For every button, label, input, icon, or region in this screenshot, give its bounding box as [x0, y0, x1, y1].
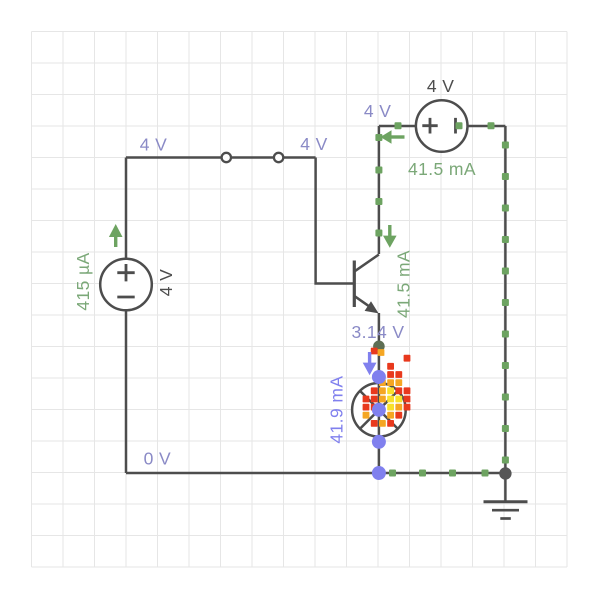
svg-text:4 V: 4 V: [300, 134, 327, 154]
svg-text:41.5 mA: 41.5 mA: [393, 250, 413, 318]
svg-text:4 V: 4 V: [156, 269, 176, 296]
svg-text:4 V: 4 V: [140, 134, 167, 154]
svg-text:0 V: 0 V: [144, 449, 171, 469]
svg-text:4 V: 4 V: [427, 76, 454, 96]
svg-text:415 µA: 415 µA: [73, 252, 93, 310]
svg-text:41.5 mA: 41.5 mA: [408, 159, 476, 179]
svg-text:3.14 V: 3.14 V: [352, 322, 405, 342]
svg-text:4 V: 4 V: [364, 101, 391, 121]
svg-text:41.9 mA: 41.9 mA: [326, 376, 346, 444]
